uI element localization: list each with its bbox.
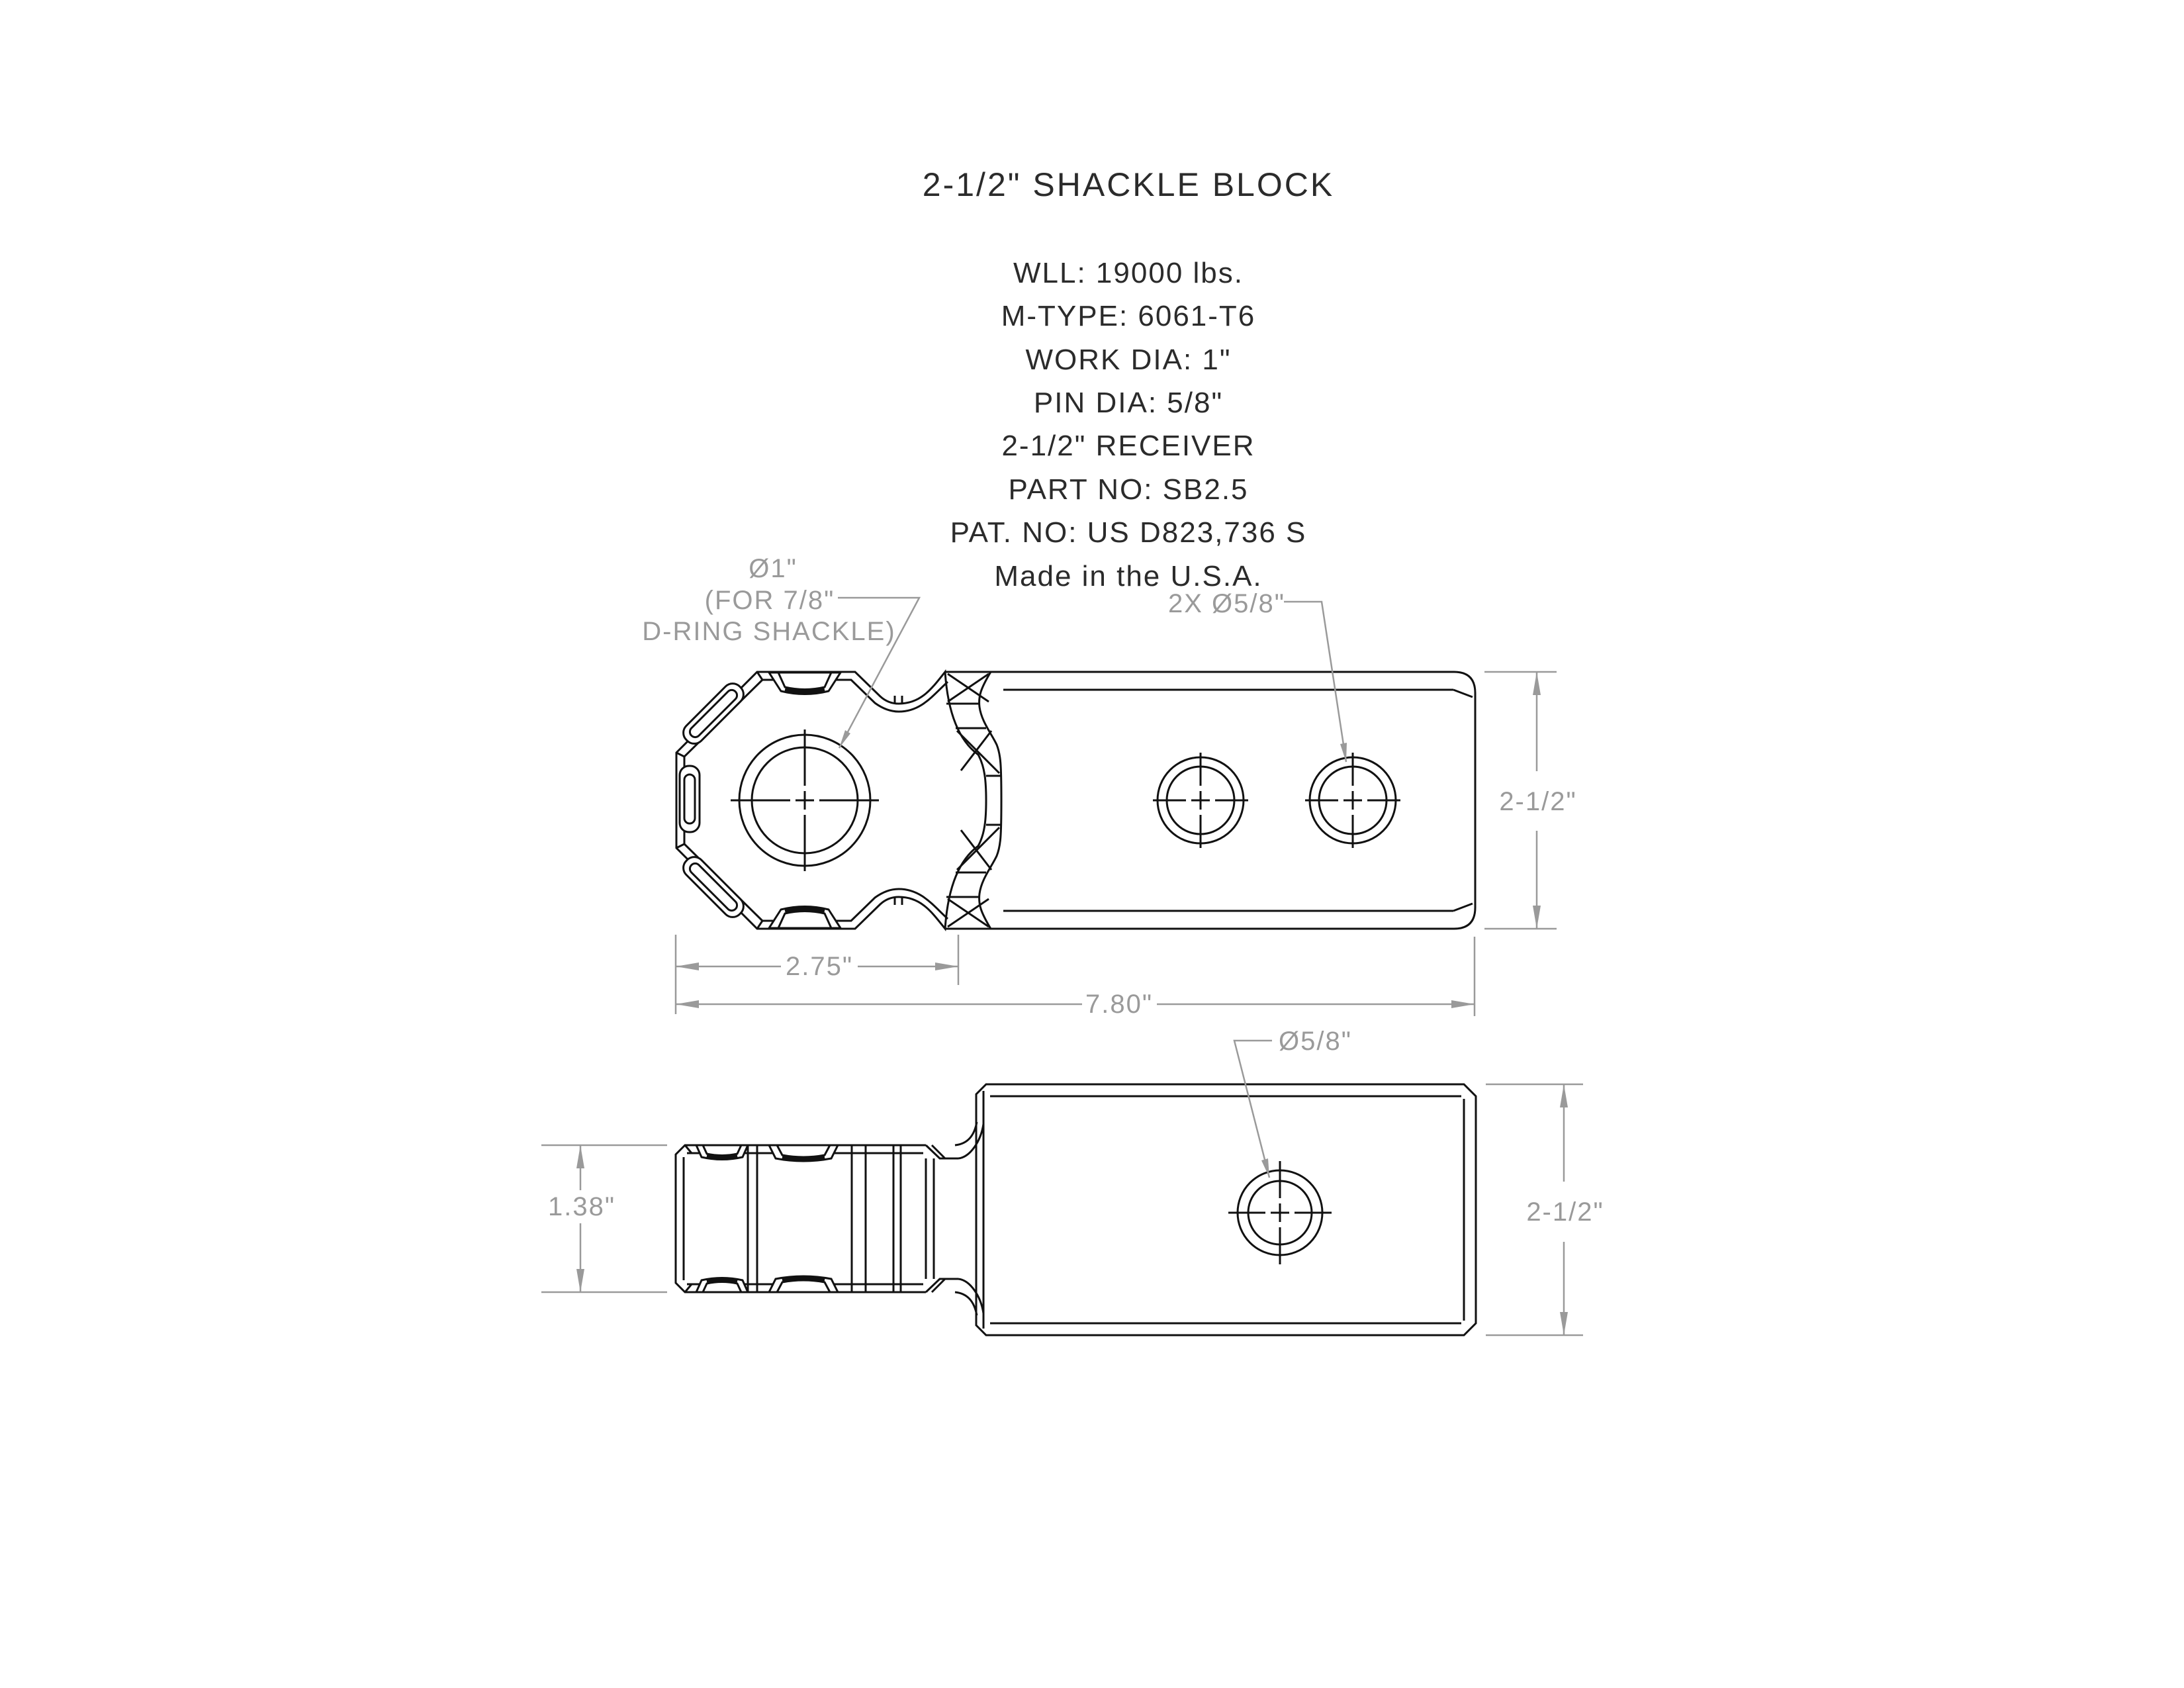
slot-left-face [680,766,700,832]
side-hole-leader-line [1234,1041,1272,1178]
spec-line-mtype: M-TYPE: 6061-T6 [1001,300,1256,332]
top-view-part [676,672,1475,929]
dim-height-side-view: 2-1/2" [1486,1084,1604,1335]
slot-top-shadow [785,690,825,692]
band-right-curve [979,672,1001,929]
arrowhead-down [1560,1312,1568,1335]
side-hole-label: Ø5/8" [1279,1027,1352,1056]
arrowhead-right [1451,1000,1475,1008]
block-outline [976,1084,1476,1335]
leader-arrowhead [839,730,850,748]
pin-holes-label: 2X Ø5/8" [1168,589,1285,618]
dim-shank-height: 1.38" [541,1145,667,1292]
pin-holes-leader-line [1284,602,1346,762]
shank-outline [676,1145,926,1292]
slot-lower-left [679,853,747,921]
spec-line-wll: WLL: 19000 lbs. [1013,257,1244,289]
arrowhead-down [576,1269,584,1292]
page-title: 2-1/2" SHACKLE BLOCK [923,166,1334,203]
large-hole-label-line1: Ø1" [749,554,797,583]
shank-end-chamfers [926,1145,958,1292]
callout-large-hole: Ø1" (FOR 7/8" D-RING SHACKLE) [642,554,919,748]
shank-slot-t2-shadow [782,1157,825,1159]
arrowhead-right [935,962,958,970]
side-pin-hole [1228,1161,1332,1264]
arrowhead-left [676,962,699,970]
spec-line-patno: PAT. NO: US D823,736 S [950,516,1307,549]
band-crosshatch [948,674,999,927]
shank-slot-b1-shadow [707,1280,737,1282]
dim-height-top-view: 2-1/2" [1484,672,1577,929]
pin-hole-left [1153,753,1248,848]
slot-bottom-shadow [785,909,825,912]
callout-side-hole: Ø5/8" [1234,1027,1352,1178]
callout-pin-holes: 2X Ø5/8" [1168,589,1347,762]
dim-height-text: 2-1/2" [1499,787,1576,816]
dim-height-side-text: 2-1/2" [1526,1197,1604,1227]
dim-overall-length-text: 7.80" [1085,990,1153,1019]
slot-upper-left [679,679,747,747]
large-hole [731,729,879,871]
arrowhead-up [1533,672,1541,695]
side-view-part [676,1084,1476,1335]
title-block: 2-1/2" SHACKLE BLOCK WLL: 19000 lbs. M-T… [923,166,1334,592]
arrowhead-up [1560,1084,1568,1107]
spec-line-workdia: WORK DIA: 1" [1026,344,1232,376]
spec-line-pindia: PIN DIA: 5/8" [1034,387,1223,419]
shank-dividers [748,1145,934,1292]
spec-line-receiver: 2-1/2" RECEIVER [1001,430,1255,462]
arrowhead-up [576,1145,584,1168]
large-hole-label-line3: D-RING SHACKLE) [642,617,895,646]
drawing-canvas: 2-1/2" SHACKLE BLOCK WLL: 19000 lbs. M-T… [0,0,2184,1688]
shank-chamfer-lines [684,1145,923,1292]
spec-line-partno: PART NO: SB2.5 [1008,473,1248,506]
block-chamfer-lines [983,1091,1464,1329]
arrowhead-left [676,1000,699,1008]
shank-slot-b2-shadow [782,1278,825,1280]
shank-slot-t1-shadow [707,1156,737,1158]
dim-overall-length: 7.80" [676,990,1475,1019]
large-hole-label-line2: (FOR 7/8" [705,586,835,615]
drawing-page: { "header": { "title": "2-1/2\" SHACKLE … [0,0,2184,1688]
top-view-dimensions: Ø1" (FOR 7/8" D-RING SHACKLE) 2X Ø5/8" 2… [642,554,1576,1019]
flare-curves [955,1122,983,1315]
pin-hole-right [1305,753,1400,848]
spec-line-madein: Made in the U.S.A. [994,560,1262,592]
arrowhead-down [1533,906,1541,929]
dim-head-width-text: 2.75" [786,952,853,981]
band-rungs [946,704,1001,897]
dim-shank-height-text: 1.38" [548,1192,615,1221]
neck-ticks [895,696,902,905]
